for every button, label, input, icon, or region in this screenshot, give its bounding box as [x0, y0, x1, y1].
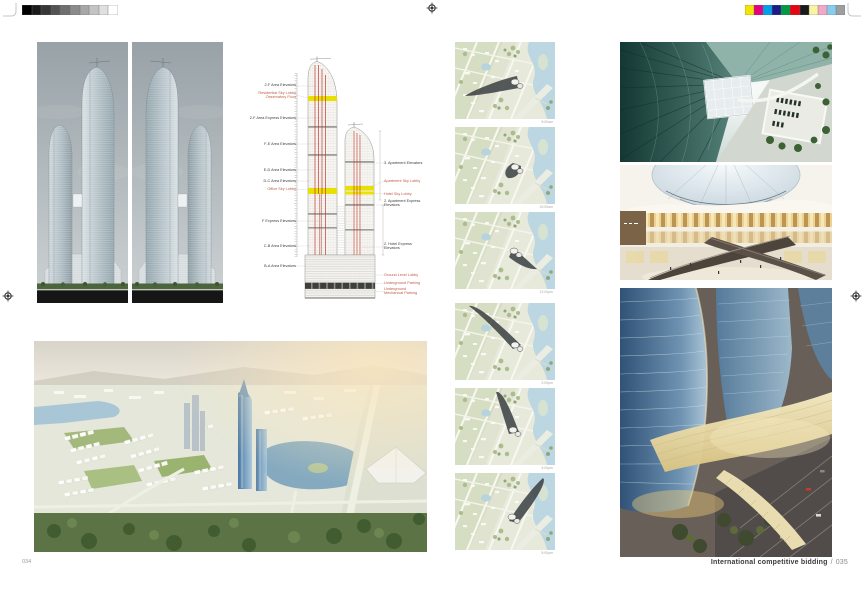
zone-label: 2. Apartment ExpressElevators	[384, 199, 446, 208]
shadow-study-caption: 5:00pm	[455, 551, 553, 555]
crop-mark-top-left-icon	[1, 1, 19, 19]
mall-atrium-interior-rendering	[620, 165, 832, 280]
calibration-swatch	[790, 5, 799, 15]
tower-elevation-rendering-left	[37, 42, 128, 303]
tower-elevation-rendering-right	[132, 42, 223, 303]
calibration-swatch	[80, 5, 90, 15]
sky-lobby-label: Office Sky Lobby	[234, 187, 296, 191]
registration-target-top-icon	[426, 2, 438, 14]
calibration-swatch	[745, 5, 754, 15]
shadow-study-caption: 9:00am	[455, 120, 553, 124]
zone-label: F-E Area Elevators	[234, 142, 296, 146]
shadow-study-map-3	[455, 212, 555, 289]
registration-target-right-icon	[850, 290, 862, 302]
calibration-swatch	[99, 5, 109, 15]
zone-label: D-C Area Elevators	[234, 179, 296, 183]
footer-series-title: International competitive bidding	[711, 559, 828, 566]
zone-label: F Express Elevators	[234, 219, 296, 223]
calibration-swatch	[32, 5, 42, 15]
color-calibration-strip	[745, 5, 845, 15]
zone-label: 2-F Area Express Elevators	[234, 116, 296, 120]
book-spread: { "page": { "left_folio": "034", "right_…	[0, 0, 864, 600]
calibration-swatch	[89, 5, 99, 15]
shadow-study-map-4	[455, 303, 555, 380]
masterplan-aerial-rendering	[34, 341, 427, 552]
zone-label: 3. Apartment Elevators	[384, 161, 446, 165]
shadow-study-map-2	[455, 127, 555, 204]
zone-label: 2. Hotel ExpressElevators	[384, 242, 446, 251]
shadow-study-caption: 12:00pm	[455, 290, 553, 294]
calibration-swatch	[60, 5, 70, 15]
calibration-swatch	[772, 5, 781, 15]
calibration-swatch	[763, 5, 772, 15]
level-label: Underground Parking	[384, 281, 446, 285]
calibration-swatch	[108, 5, 118, 15]
zone-label: E-D Area Elevators	[234, 168, 296, 172]
diagram-podium	[305, 255, 375, 298]
calibration-swatch	[22, 5, 32, 15]
calibration-swatch	[70, 5, 80, 15]
footer-separator: /	[831, 559, 833, 566]
level-label: Ground Level Lobby	[384, 273, 446, 277]
shadow-study-map-5	[455, 388, 555, 465]
sky-lobby-label: Residential Sky LobbyObservatory Floor	[234, 91, 296, 100]
calibration-swatch	[836, 5, 845, 15]
calibration-swatch	[809, 5, 818, 15]
skylight	[704, 76, 754, 119]
shadow-study-caption: 4:00pm	[455, 466, 553, 470]
zone-label: C-B Area Elevators	[234, 244, 296, 248]
right-page-number: 035	[836, 559, 848, 566]
shadow-study-caption: 2:00pm	[455, 381, 553, 385]
level-label: UndergroundMechanical Parking	[384, 287, 446, 296]
crop-mark-top-right-icon	[845, 1, 863, 19]
calibration-swatch	[818, 5, 827, 15]
atrium-worms-eye-rendering	[620, 42, 832, 162]
calibration-swatch	[41, 5, 51, 15]
zone-label: 2-F Area Elevators	[234, 83, 296, 87]
shadow-study-map-1	[455, 42, 555, 119]
calibration-swatch	[781, 5, 790, 15]
calibration-swatch	[51, 5, 61, 15]
tower-base-night-rendering	[620, 288, 832, 557]
registration-target-left-icon	[2, 290, 14, 302]
shadow-study-caption: 10:00am	[455, 205, 553, 209]
shadow-study-map-6	[455, 473, 555, 550]
sky-lobby-label: Hotel Sky Lobby	[384, 192, 446, 196]
diagram-short-tower	[345, 122, 374, 255]
running-footer: International competitive bidding/035	[711, 559, 848, 566]
calibration-swatch	[754, 5, 763, 15]
calibration-swatch	[800, 5, 809, 15]
calibration-swatch	[827, 5, 836, 15]
zone-label: B-A Area Elevators	[234, 264, 296, 268]
grayscale-calibration-strip	[22, 5, 118, 15]
sky-lobby-label: Apartment Sky Lobby	[384, 179, 446, 183]
left-page-number: 034	[22, 559, 31, 565]
